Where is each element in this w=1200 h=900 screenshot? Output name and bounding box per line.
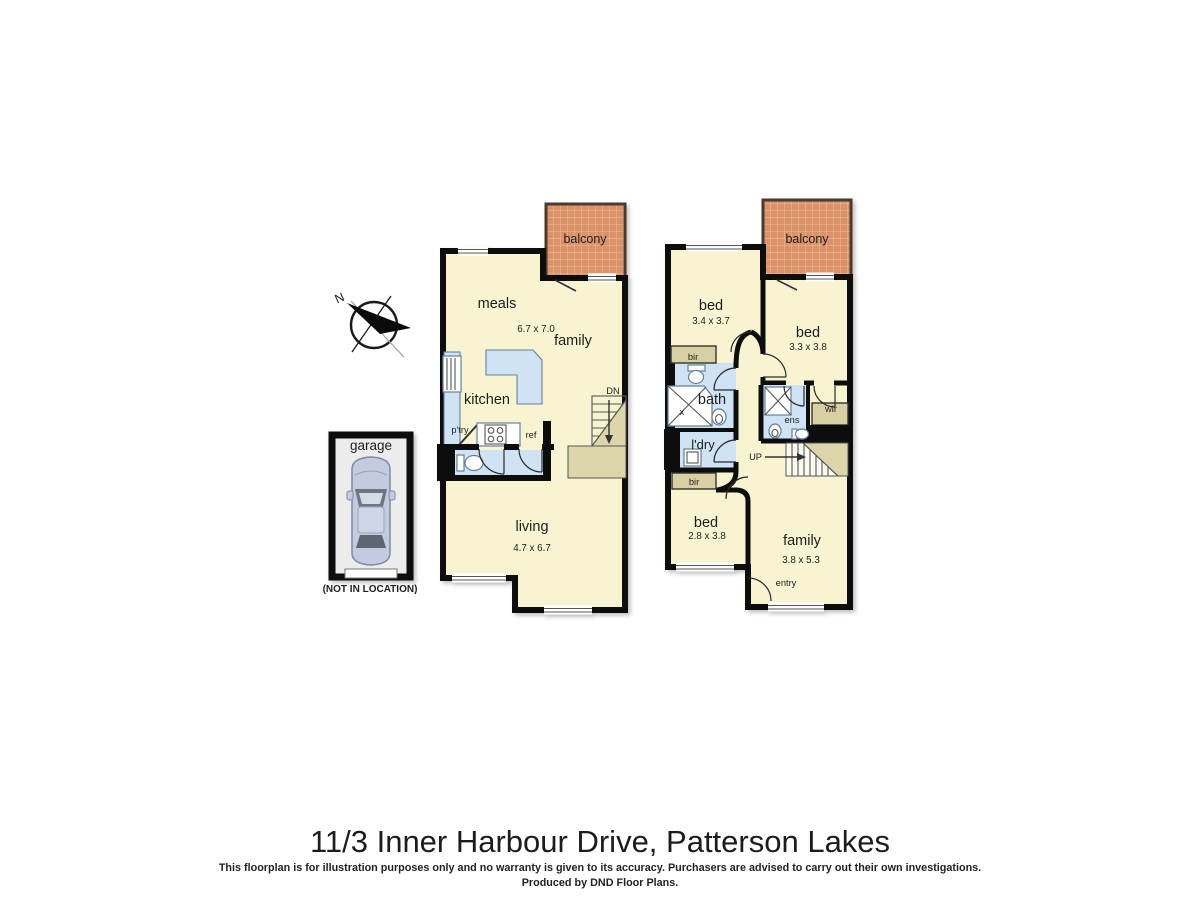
family-label: family (554, 333, 593, 349)
bir-label: bir (688, 352, 698, 362)
family-label: family (783, 533, 822, 549)
bed2-dims: 3.3 x 3.8 (789, 342, 827, 353)
meals-label: meals (478, 296, 517, 312)
toilet-icon (792, 429, 809, 439)
garage-door (345, 569, 397, 578)
toilet-icon (457, 455, 483, 471)
address-title: 11/3 Inner Harbour Drive, Patterson Lake… (0, 824, 1200, 860)
shower-icon (765, 387, 791, 415)
compass-icon: N (333, 290, 411, 357)
wall-mass (437, 449, 455, 478)
basin-icon (712, 409, 726, 425)
bed2-label: bed (796, 325, 820, 341)
floorplan-page: balcony meals 6.7 x 7.0 family kitchen p… (0, 0, 1200, 900)
wall-mass (806, 425, 850, 443)
car-icon (347, 457, 395, 565)
bed3-dims: 2.8 x 3.8 (688, 531, 726, 542)
disclaimer-text: This floorplan is for illustration purpo… (0, 862, 1200, 874)
basin-icon (769, 424, 781, 438)
toilet-icon (688, 365, 705, 384)
shower-x-label: x (680, 407, 685, 417)
kitchen-label: kitchen (464, 392, 510, 408)
pantry-label: p'try (451, 425, 469, 435)
balcony-label: balcony (563, 232, 607, 246)
entry-level-plan: balcony bed 3.4 x 3.7 bed 3.3 x 3.8 bir … (664, 200, 851, 612)
living-level-plan: balcony meals 6.7 x 7.0 family kitchen p… (437, 204, 626, 615)
ens-label: ens (785, 415, 800, 425)
floorplan-svg: balcony meals 6.7 x 7.0 family kitchen p… (0, 0, 1200, 900)
stair-up-label: UP (749, 452, 762, 462)
wir-label: wir (824, 404, 837, 414)
fridge-label: ref (526, 430, 537, 440)
entry-label: entry (776, 578, 797, 588)
garage-note: (NOT IN LOCATION) (323, 584, 418, 595)
family-dims: 6.7 x 7.0 (517, 324, 555, 335)
bed1-dims: 3.4 x 3.7 (692, 316, 730, 327)
family-dims: 3.8 x 5.3 (782, 555, 820, 566)
cooktop-icon (477, 423, 520, 446)
compass-north-label: N (333, 290, 347, 306)
laundry-label: l'dry (691, 437, 715, 452)
garage-label: garage (350, 438, 392, 453)
bed1-label: bed (699, 298, 723, 314)
kitchen-sink-icon (443, 356, 461, 392)
wall-stub (543, 421, 551, 480)
stair-dn-label: DN (606, 386, 619, 396)
bir-label: bir (689, 477, 699, 487)
living-label: living (515, 519, 548, 535)
balcony-label: balcony (785, 232, 829, 246)
wall-mass (664, 429, 680, 470)
produced-by-text: Produced by DND Floor Plans. (0, 877, 1200, 889)
living-dims: 4.7 x 6.7 (513, 543, 551, 554)
compass-needle (347, 303, 411, 334)
bed3-label: bed (694, 515, 718, 531)
garage-plan: garage (332, 435, 410, 578)
bath-label: bath (698, 392, 726, 408)
